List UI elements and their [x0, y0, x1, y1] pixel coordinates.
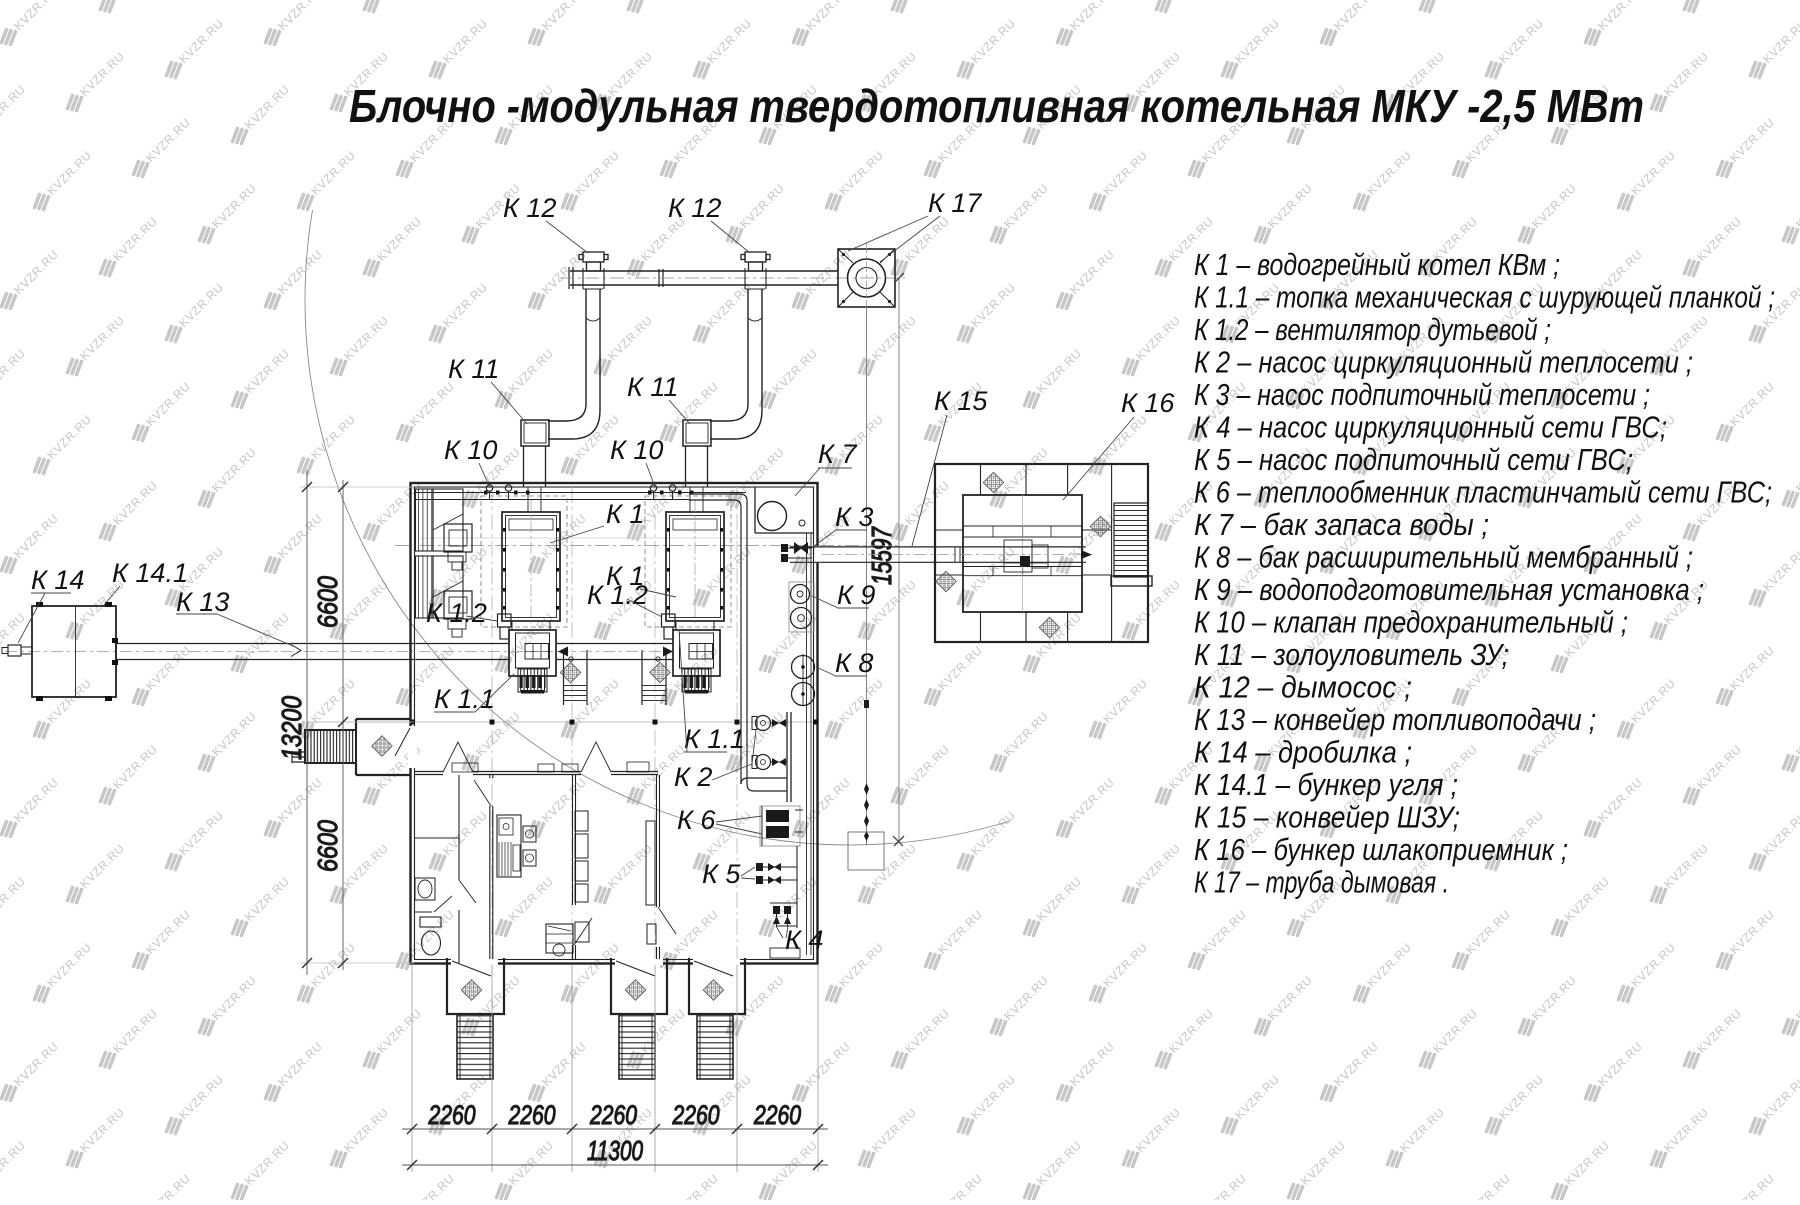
svg-text:К 9 – водоподготовительная у: К 9 – водоподготовительная установка ; — [1194, 572, 1704, 607]
svg-text:К 14: К 14 — [31, 565, 84, 595]
svg-text:К 8 – бак расширительный мем: К 8 – бак расширительный мембранный ; — [1194, 540, 1693, 575]
svg-text:К 10 – клапан предохранительн: К 10 – клапан предохранительный ; — [1194, 605, 1628, 640]
svg-text:К 6: К 6 — [677, 805, 716, 835]
svg-text:К 14.1: К 14.1 — [112, 558, 188, 588]
svg-text:2260: 2260 — [753, 1100, 801, 1130]
svg-text:К 5: К 5 — [702, 859, 741, 889]
svg-text:К 17: К 17 — [928, 188, 982, 218]
svg-text:К 11: К 11 — [448, 354, 499, 384]
svg-text:К 9: К 9 — [837, 580, 875, 610]
svg-text:2260: 2260 — [428, 1100, 476, 1130]
svg-text:К 7 – бак запаса воды ;: К 7 – бак запаса воды ; — [1194, 507, 1489, 542]
svg-text:К 13: К 13 — [176, 587, 229, 617]
svg-text:13200: 13200 — [276, 696, 307, 760]
svg-text:К 14.1 – бункер угля ;: К 14.1 – бункер угля ; — [1194, 767, 1458, 802]
svg-text:К 12: К 12 — [668, 193, 721, 223]
svg-text:К 12 – дымосос ;: К 12 – дымосос ; — [1194, 670, 1412, 705]
svg-text:2260: 2260 — [672, 1100, 720, 1130]
svg-text:К 1.1 – топка механическая с: К 1.1 – топка механическая с шурующей пл… — [1194, 280, 1775, 315]
svg-text:К 12: К 12 — [503, 193, 556, 223]
svg-text:К 6 – теплообменник пластинч: К 6 – теплообменник пластинчатый сети ГВ… — [1194, 475, 1772, 510]
svg-text:К 1.1: К 1.1 — [434, 684, 495, 714]
svg-text:К 15: К 15 — [934, 386, 988, 416]
svg-text:К 1: К 1 — [606, 499, 644, 529]
svg-text:К 2: К 2 — [674, 762, 712, 792]
svg-text:К 4: К 4 — [785, 925, 823, 955]
svg-text:К 7: К 7 — [818, 439, 857, 469]
svg-text:К 11 – золоуловитель ЗУ;: К 11 – золоуловитель ЗУ; — [1194, 637, 1509, 672]
svg-text:К 10: К 10 — [610, 435, 663, 465]
svg-text:15597: 15597 — [866, 526, 897, 585]
svg-text:К 5 – насос подпиточный сети: К 5 – насос подпиточный сети ГВС; — [1194, 442, 1633, 477]
svg-text:К 1.1: К 1.1 — [684, 724, 745, 754]
svg-text:6600: 6600 — [312, 820, 343, 872]
svg-text:К 17 – труба дымовая .: К 17 – труба дымовая . — [1194, 865, 1449, 900]
svg-text:6600: 6600 — [312, 576, 343, 628]
svg-text:К 4 – насос циркуляционный с: К 4 – насос циркуляционный сети ГВС; — [1194, 410, 1667, 445]
svg-text:К 2 – насос циркуляционный т: К 2 – насос циркуляционный теплосети ; — [1194, 345, 1693, 380]
svg-text:11300: 11300 — [587, 1135, 643, 1166]
svg-text:К 13 – конвейер топливоподачи: К 13 – конвейер топливоподачи ; — [1194, 702, 1596, 737]
svg-text:К 10: К 10 — [444, 435, 497, 465]
svg-text:К 3: К 3 — [835, 502, 873, 532]
svg-text:2260: 2260 — [589, 1100, 637, 1130]
svg-text:Блочно -модульная твердотоплив: Блочно -модульная твердотопливная котель… — [349, 80, 1644, 132]
svg-text:К 3 – насос подпиточный тепл: К 3 – насос подпиточный теплосети ; — [1194, 377, 1650, 412]
svg-text:К 16 – бункер шлакоприемник ;: К 16 – бункер шлакоприемник ; — [1194, 832, 1568, 867]
svg-text:К 15 – конвейер ШЗУ;: К 15 – конвейер ШЗУ; — [1194, 800, 1460, 835]
svg-text:К 1.2: К 1.2 — [426, 598, 487, 628]
svg-text:К 11: К 11 — [627, 372, 678, 402]
svg-text:К 1.2 – вентилятор дутьевой ;: К 1.2 – вентилятор дутьевой ; — [1194, 312, 1551, 347]
svg-text:К 1 – водогрейный котел КВм: К 1 – водогрейный котел КВм ; — [1194, 247, 1560, 282]
svg-text:К 14 – дробилка ;: К 14 – дробилка ; — [1194, 735, 1412, 770]
svg-text:К 16: К 16 — [1121, 388, 1175, 418]
svg-text:К 8: К 8 — [835, 648, 873, 678]
svg-text:2260: 2260 — [508, 1100, 556, 1130]
